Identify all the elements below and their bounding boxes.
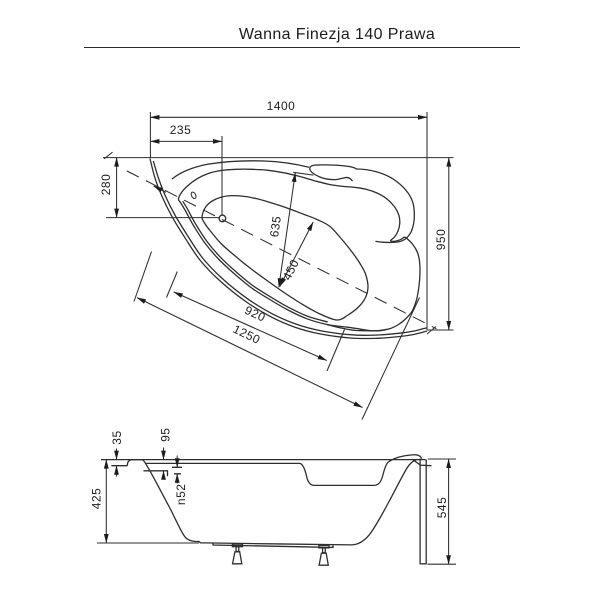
svg-text:545: 545	[435, 497, 449, 519]
svg-text:280: 280	[99, 174, 113, 196]
svg-text:950: 950	[434, 229, 448, 251]
svg-text:920: 920	[242, 303, 267, 325]
svg-text:450: 450	[280, 257, 302, 282]
svg-text:635: 635	[267, 215, 284, 238]
svg-text:Wanna Finezja 140 Prawa: Wanna Finezja 140 Prawa	[239, 26, 435, 43]
svg-text:1250: 1250	[231, 322, 263, 347]
svg-text:1400: 1400	[267, 99, 296, 113]
svg-text:235: 235	[170, 123, 192, 137]
svg-text:35: 35	[110, 430, 124, 444]
svg-text:425: 425	[90, 488, 104, 510]
svg-text:n52: n52	[174, 484, 188, 506]
svg-text:95: 95	[159, 428, 173, 442]
